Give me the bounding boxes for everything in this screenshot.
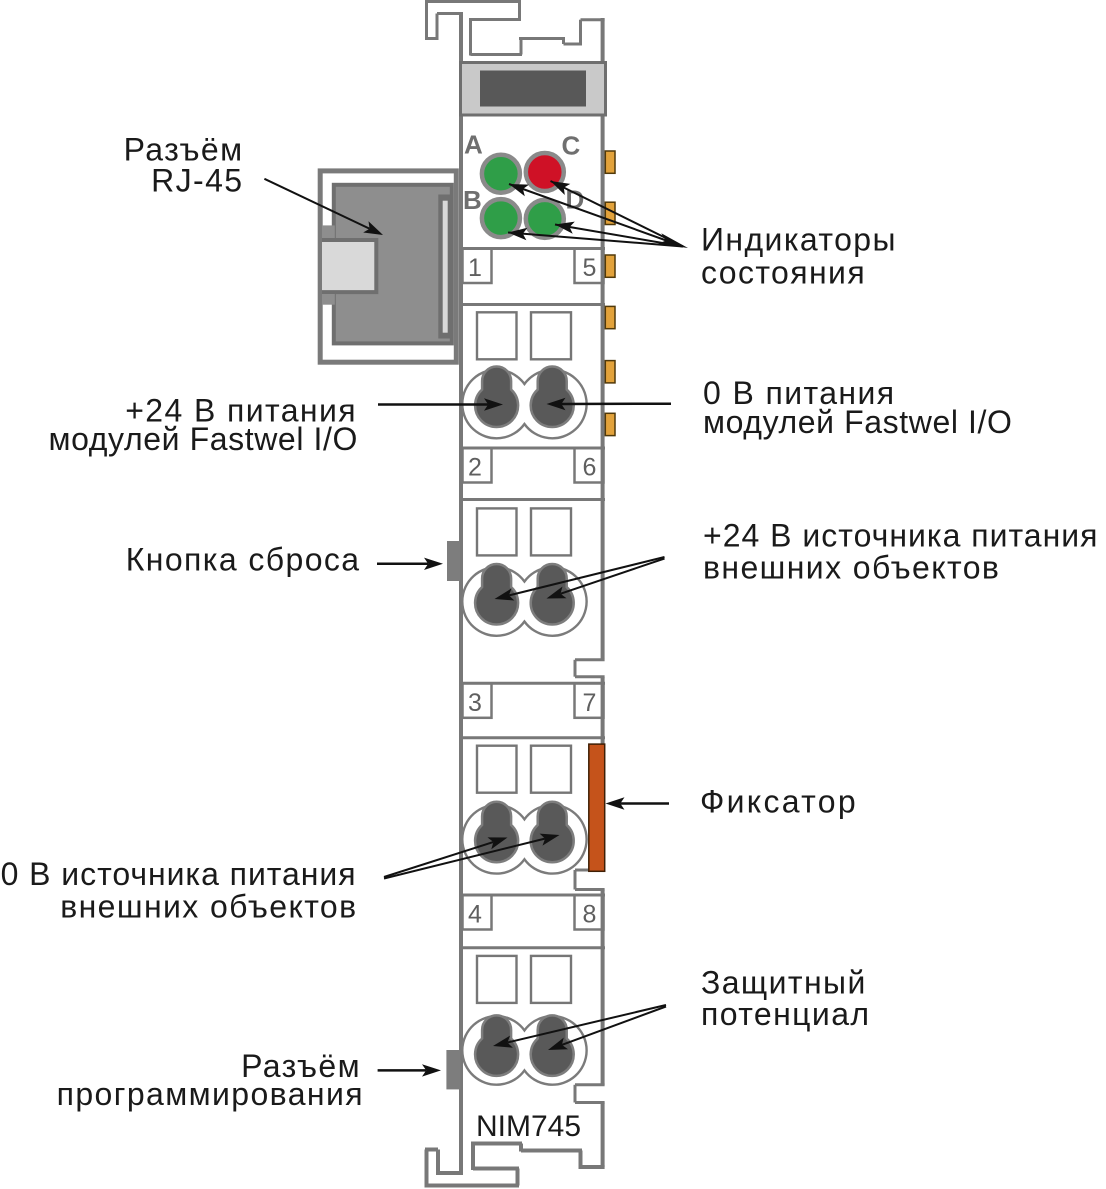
- svg-text:1: 1: [468, 254, 482, 282]
- svg-text:программирования: программирования: [57, 1076, 364, 1112]
- svg-text:3: 3: [468, 689, 482, 717]
- svg-text:8: 8: [583, 901, 597, 929]
- svg-text:7: 7: [583, 689, 597, 717]
- svg-text:Фиксатор: Фиксатор: [700, 784, 858, 820]
- svg-text:RJ-45: RJ-45: [151, 162, 243, 198]
- svg-text:состояния: состояния: [701, 255, 866, 291]
- svg-text:4: 4: [468, 901, 482, 929]
- svg-text:внешних объектов: внешних объектов: [60, 888, 357, 924]
- svg-text:Кнопка сброса: Кнопка сброса: [126, 542, 361, 578]
- svg-text:Индикаторы: Индикаторы: [701, 222, 897, 258]
- svg-text:5: 5: [583, 254, 597, 282]
- svg-text:NIM745: NIM745: [476, 1110, 581, 1143]
- svg-text:внешних объектов: внешних объектов: [703, 550, 1000, 586]
- svg-text:+24 В источника питания: +24 В источника питания: [703, 518, 1098, 554]
- svg-text:A: A: [464, 130, 483, 160]
- svg-text:модулей Fastwel I/O: модулей Fastwel I/O: [48, 421, 358, 457]
- svg-text:потенциал: потенциал: [701, 996, 870, 1032]
- svg-text:2: 2: [468, 454, 482, 482]
- svg-text:6: 6: [583, 454, 597, 482]
- svg-text:B: B: [463, 185, 482, 215]
- svg-text:0 В источника питания: 0 В источника питания: [1, 856, 357, 892]
- svg-text:модулей Fastwel I/O: модулей Fastwel I/O: [703, 404, 1013, 440]
- svg-text:C: C: [562, 131, 581, 161]
